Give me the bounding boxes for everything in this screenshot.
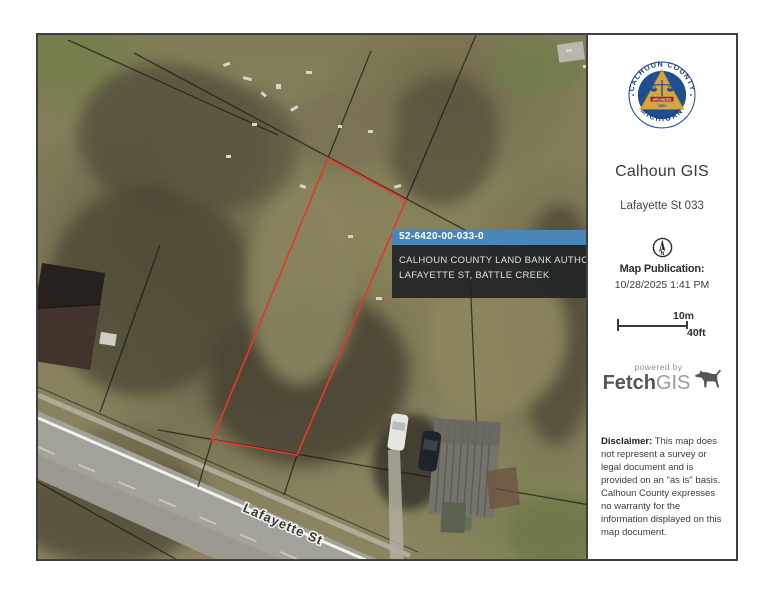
shed — [440, 502, 466, 533]
publication-datetime: 10/28/2025 1:41 PM — [615, 279, 710, 291]
driveway — [388, 449, 404, 561]
parcel-address: LAFAYETTE ST, BATTLE CREEK — [399, 268, 583, 283]
publication-label: Map Publication: — [620, 263, 705, 275]
fetchgis-brand: powered by FetchGIS — [603, 362, 722, 393]
parcel-info-body: CALHOUN COUNTY LAND BANK AUTHORIT LAFAYE… — [392, 245, 588, 298]
scale-bar: 10m 40ft — [617, 312, 727, 340]
disclaimer-label: Disclaimer: — [601, 436, 652, 447]
car-white — [387, 413, 409, 451]
parcel-info-callout: 52-6420-00-033-0 CALHOUN COUNTY LAND BAN… — [392, 230, 588, 298]
map-subtitle: Lafayette St 033 — [620, 200, 704, 212]
scale-bar-left-tick — [617, 319, 619, 331]
parcel-id-header: 52-6420-00-033-0 — [392, 230, 588, 245]
structures-top-right — [557, 41, 588, 76]
aerial-map-canvas[interactable]: Lafayette St 52-6420-00-033-0 CALHOUN CO… — [36, 33, 588, 561]
scale-imperial-label: 40ft — [687, 327, 706, 339]
calhoun-county-seal-logo: CALHOUN COUNTY MICHIGAN ORGANIZED 1833 — [628, 61, 696, 129]
scale-bar-line — [617, 325, 688, 327]
seal-year-text: 1833 — [658, 104, 666, 108]
building-left — [38, 263, 105, 370]
map-title: Calhoun GIS — [615, 163, 709, 181]
porch — [99, 332, 117, 346]
fetchgis-wordmark: FetchGIS — [603, 373, 691, 393]
selected-parcel-outline[interactable] — [212, 158, 406, 455]
north-letter: N — [660, 251, 664, 257]
road-lafayette — [38, 387, 418, 561]
pointer-dog-icon — [694, 367, 721, 392]
parcel-owner: CALHOUN COUNTY LAND BANK AUTHORIT — [399, 253, 583, 268]
map-linework: Lafayette St — [38, 35, 588, 561]
powered-by-label: powered by — [634, 362, 682, 372]
map-legend-sidebar: CALHOUN COUNTY MICHIGAN ORGANIZED 1833 C… — [586, 33, 738, 561]
patio — [486, 467, 520, 509]
disclaimer: Disclaimer: This map does not represent … — [588, 435, 736, 539]
disclaimer-text: This map does not represent a survey or … — [601, 436, 721, 538]
north-arrow-icon: N — [652, 237, 673, 258]
scale-metric-label: 10m — [673, 310, 694, 322]
seal-ribbon-text: ORGANIZED — [653, 97, 672, 101]
